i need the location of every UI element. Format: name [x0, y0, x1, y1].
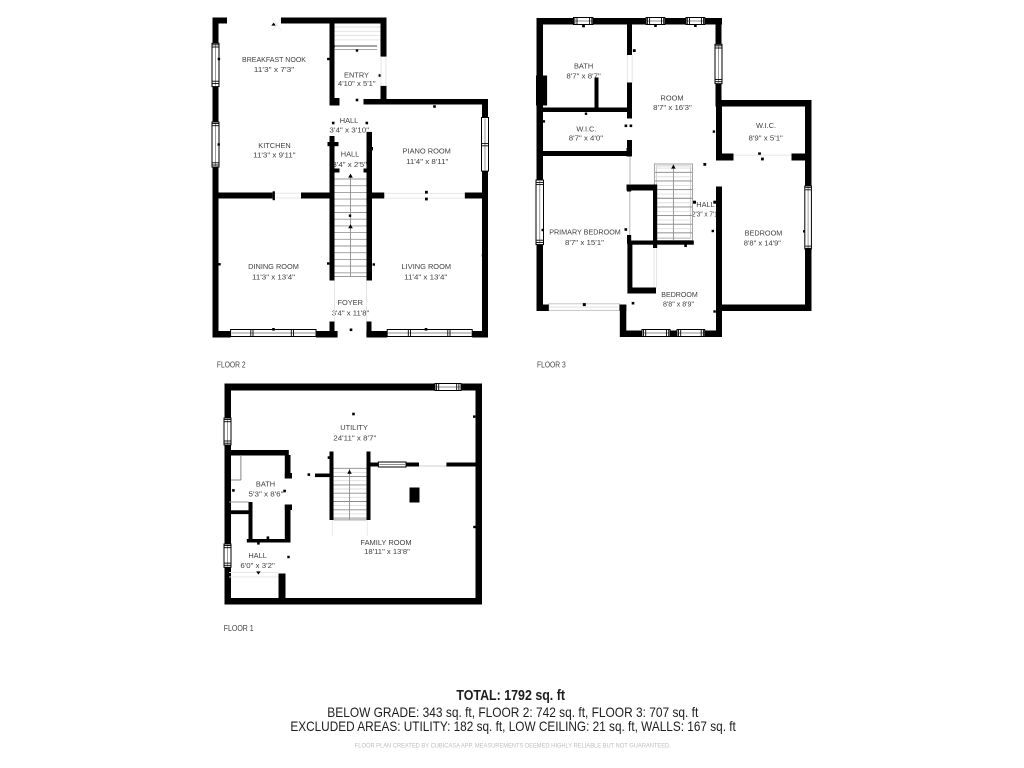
svg-text:EXCLUDED AREAS: UTILITY: 182 s: EXCLUDED AREAS: UTILITY: 182 sq. ft, LOW…	[290, 718, 736, 734]
svg-text:3'4" x 3'10": 3'4" x 3'10"	[329, 126, 369, 135]
svg-text:FLOOR 3: FLOOR 3	[537, 360, 566, 369]
svg-text:LIVING ROOM: LIVING ROOM	[402, 262, 452, 271]
svg-text:8'7" x 16'3": 8'7" x 16'3"	[653, 103, 692, 112]
svg-text:8'9" x 5'1": 8'9" x 5'1"	[749, 133, 784, 142]
svg-text:6'0" x 3'2": 6'0" x 3'2"	[240, 561, 275, 570]
svg-text:W.I.C.: W.I.C.	[756, 121, 776, 130]
svg-text:HALL: HALL	[341, 150, 360, 159]
svg-text:FLOOR 2: FLOOR 2	[217, 360, 246, 369]
svg-text:4'10" x 5'1": 4'10" x 5'1"	[338, 79, 376, 88]
svg-text:FLOOR PLAN CREATED BY CUBICASA: FLOOR PLAN CREATED BY CUBICASA APP. MEAS…	[355, 743, 671, 750]
svg-text:PRIMARY BEDROOM: PRIMARY BEDROOM	[549, 227, 621, 236]
svg-text:UTILITY: UTILITY	[340, 423, 368, 432]
svg-text:KITCHEN: KITCHEN	[258, 141, 290, 150]
svg-text:11'3" x 7'3": 11'3" x 7'3"	[254, 65, 295, 74]
svg-text:BEDROOM: BEDROOM	[661, 290, 697, 299]
svg-text:8'8" x 14'9": 8'8" x 14'9"	[744, 238, 782, 247]
svg-text:HALL: HALL	[248, 551, 267, 560]
svg-text:11'3" x 13'4": 11'3" x 13'4"	[252, 273, 295, 282]
svg-text:ROOM: ROOM	[661, 93, 684, 102]
svg-text:18'11" x 13'8": 18'11" x 13'8"	[364, 547, 410, 556]
svg-text:FAMILY ROOM: FAMILY ROOM	[360, 538, 411, 547]
svg-text:BATH: BATH	[256, 480, 275, 489]
svg-text:8'8" x 8'9": 8'8" x 8'9"	[663, 300, 694, 309]
svg-text:HALL: HALL	[340, 116, 359, 125]
svg-text:PIANO ROOM: PIANO ROOM	[403, 146, 451, 155]
svg-text:3'4" x 11'8": 3'4" x 11'8"	[332, 308, 370, 317]
svg-text:TOTAL: 1792 sq. ft: TOTAL: 1792 sq. ft	[456, 687, 565, 704]
svg-text:BEDROOM: BEDROOM	[745, 229, 783, 238]
svg-text:11'4" x 13'4": 11'4" x 13'4"	[404, 273, 447, 282]
svg-text:BATH: BATH	[574, 61, 593, 70]
svg-text:11'3" x 9'11": 11'3" x 9'11"	[253, 150, 296, 159]
svg-text:DINING ROOM: DINING ROOM	[248, 262, 299, 271]
svg-text:8'7" x 4'0": 8'7" x 4'0"	[569, 133, 604, 142]
svg-text:11'4" x 8'11": 11'4" x 8'11"	[406, 157, 449, 166]
svg-text:W.I.C.: W.I.C.	[576, 124, 596, 133]
svg-text:24'11" x 8'7": 24'11" x 8'7"	[333, 434, 376, 443]
svg-text:8'7" x 15'1": 8'7" x 15'1"	[565, 238, 604, 247]
svg-text:FOYER: FOYER	[337, 298, 362, 307]
svg-text:5'3" x 8'6": 5'3" x 8'6"	[249, 489, 284, 498]
svg-text:3'4" x 2'5": 3'4" x 2'5"	[332, 160, 367, 169]
svg-text:BREAKFAST NOOK: BREAKFAST NOOK	[242, 55, 306, 64]
svg-text:HALL: HALL	[696, 200, 715, 209]
svg-text:FLOOR 1: FLOOR 1	[224, 624, 254, 633]
